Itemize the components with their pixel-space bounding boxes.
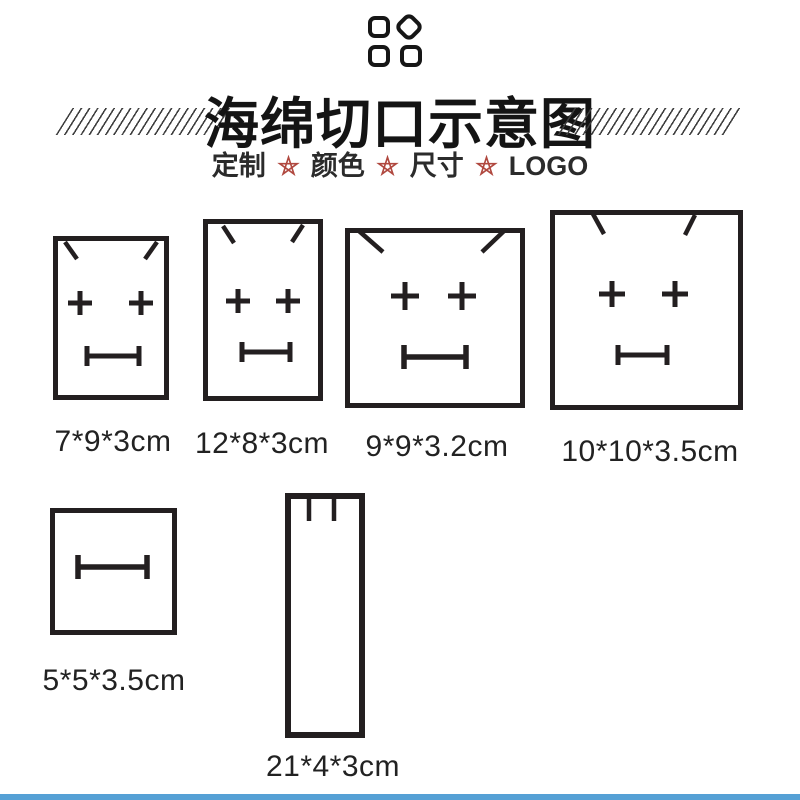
size-label: 12*8*3cm — [189, 427, 335, 460]
logo-tile-top-left — [368, 16, 390, 38]
plus-cut-mark — [276, 289, 300, 313]
sponge-diagram-7x9 — [48, 231, 174, 405]
sponge-diagram-5x5 — [45, 503, 182, 640]
brand-logo — [0, 0, 800, 72]
plus-cut-mark — [226, 289, 250, 313]
subtitle-item-logo: LOGO — [509, 150, 589, 182]
corner-slit-mark — [292, 225, 303, 242]
corner-slit-mark — [65, 242, 77, 259]
subtitle-row: 定制 颜色 尺寸 LOGO — [0, 150, 800, 182]
logo-tile-bottom-left — [368, 45, 390, 67]
size-label: 9*9*3.2cm — [360, 430, 514, 463]
corner-slit-mark — [223, 226, 234, 243]
plus-cut-mark — [662, 281, 688, 307]
corner-slit-mark — [359, 231, 383, 252]
corner-slit-mark — [145, 242, 157, 259]
sponge-outline — [56, 239, 167, 398]
sponge-outline — [553, 213, 741, 408]
corner-slit-mark — [685, 215, 695, 235]
star-icon — [475, 155, 498, 178]
sponge-outline — [348, 231, 523, 406]
bar-slot-mark — [618, 345, 667, 365]
bar-slot-mark — [78, 555, 147, 579]
logo-tile-bottom-right — [400, 45, 422, 67]
subtitle-item-size: 尺寸 — [410, 150, 464, 182]
sponge-diagram-9x9 — [340, 223, 530, 413]
sponge-diagram-21x4 — [280, 488, 370, 743]
plus-cut-mark — [391, 282, 419, 310]
subtitle-item-color: 颜色 — [311, 150, 365, 182]
bar-slot-mark — [404, 345, 466, 369]
bottom-edge-bar — [0, 794, 800, 800]
star-icon — [376, 155, 399, 178]
plus-cut-mark — [68, 291, 92, 315]
plus-cut-mark — [129, 291, 153, 315]
size-label: 10*10*3.5cm — [555, 435, 745, 468]
corner-slit-mark — [593, 214, 604, 234]
size-label: 21*4*3cm — [256, 750, 410, 783]
plus-cut-mark — [448, 282, 476, 310]
size-label: 5*5*3.5cm — [37, 664, 191, 697]
sponge-diagram-12x8 — [198, 214, 328, 406]
logo-tile-top-right-diamond — [393, 11, 424, 42]
sponge-diagram-10x10 — [545, 205, 748, 415]
sponge-outline — [288, 496, 362, 735]
plus-cut-mark — [599, 281, 625, 307]
sponge-cutout-diagram-page: 海绵切口示意图 定制 颜色 尺寸 LOGO 7*9*3cm 12*8*3 — [0, 0, 800, 800]
sponge-outline — [53, 511, 175, 633]
star-icon — [277, 155, 300, 178]
corner-slit-mark — [482, 231, 504, 252]
size-label: 7*9*3cm — [40, 425, 186, 458]
subtitle-item-custom: 定制 — [212, 150, 266, 182]
sponge-outline — [206, 222, 321, 399]
bar-slot-mark — [242, 342, 290, 362]
bar-slot-mark — [87, 346, 139, 366]
hatch-lines-right — [558, 108, 745, 135]
